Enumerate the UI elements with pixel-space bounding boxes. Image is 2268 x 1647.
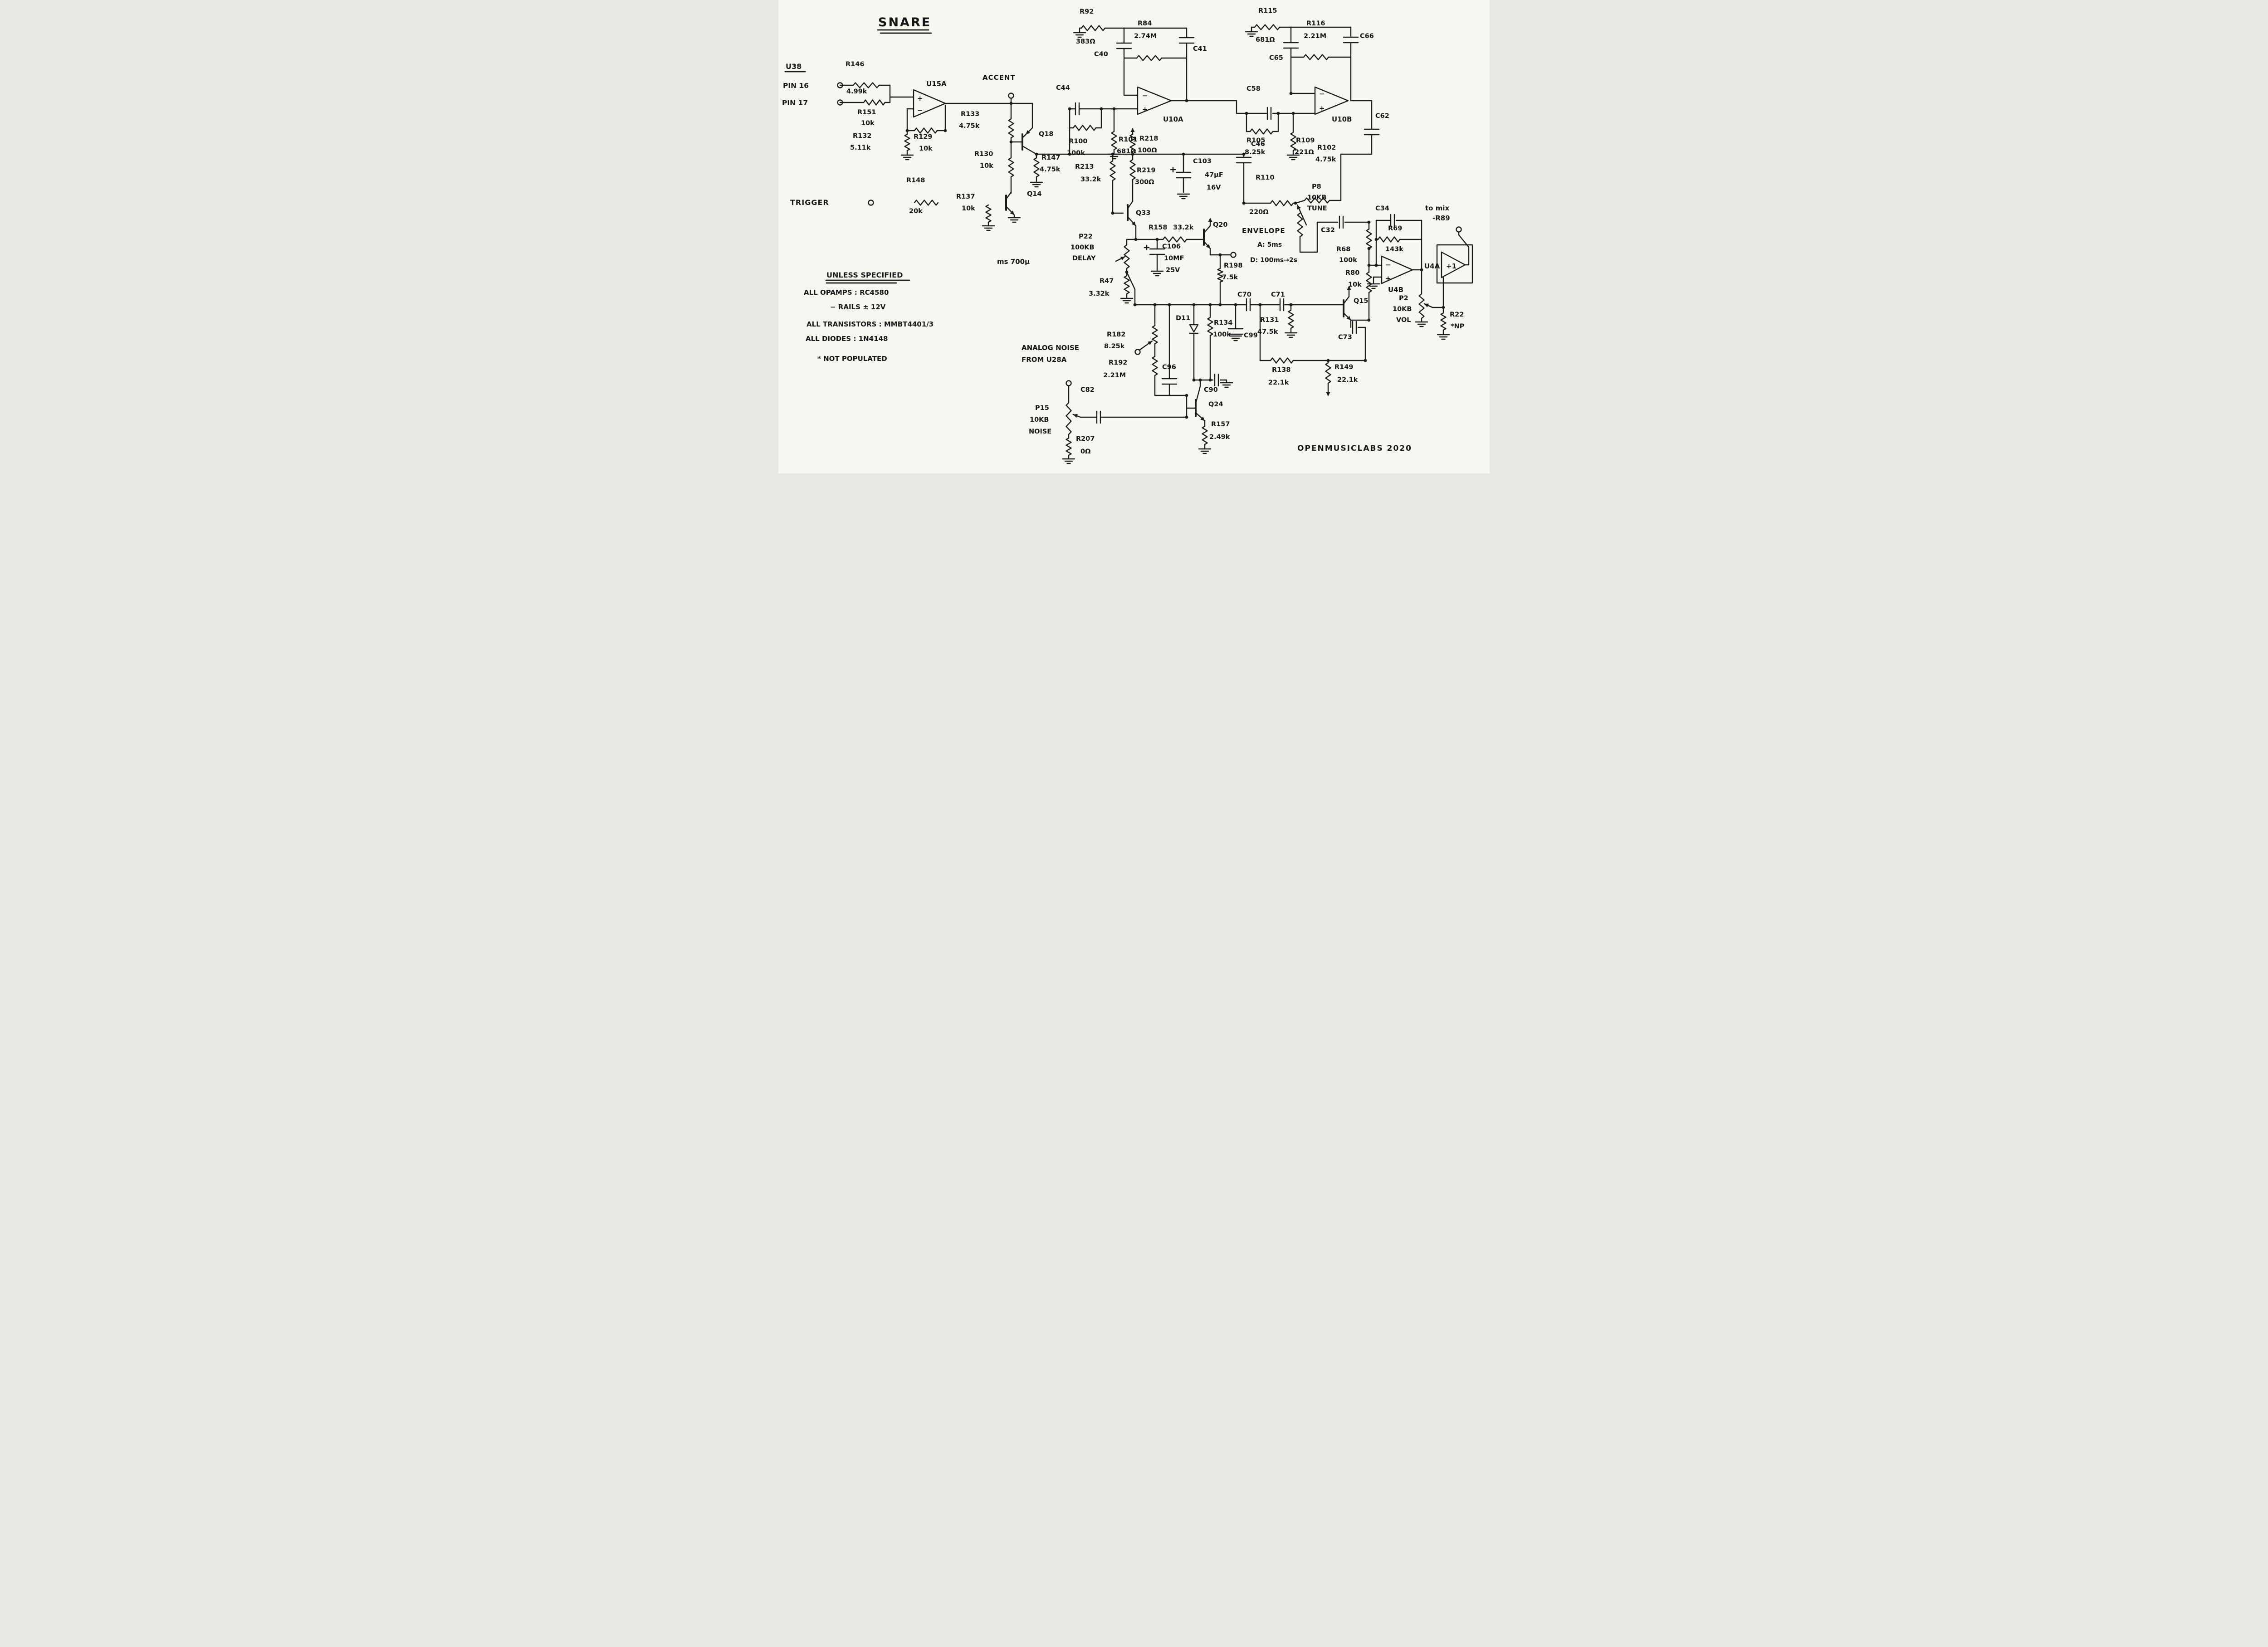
r110-value: 220Ω bbox=[1249, 209, 1269, 216]
component-C70 bbox=[1246, 299, 1250, 311]
c106-label: C106 bbox=[1162, 243, 1181, 250]
misc-label: ms 700µ bbox=[997, 258, 1030, 266]
r151-label: R151 bbox=[857, 109, 876, 116]
r22-label: R22 bbox=[1450, 311, 1464, 318]
resistor-symbol bbox=[1153, 326, 1158, 344]
c32-label: C32 bbox=[1321, 227, 1335, 234]
component-R129 bbox=[914, 128, 937, 133]
component-R115 bbox=[1255, 25, 1280, 30]
labels: R1464.99kR15110kR1325.11kR12910kR1334.75… bbox=[782, 7, 1465, 455]
tomix-line1: to mix bbox=[1425, 204, 1449, 212]
component-R147 bbox=[1034, 158, 1039, 177]
junction-dot bbox=[1134, 238, 1138, 241]
wiper-arrow-icon bbox=[1148, 341, 1152, 345]
opamp-sign-top: − bbox=[1385, 261, 1391, 269]
resistor-symbol bbox=[905, 134, 910, 151]
component-R68 bbox=[1367, 229, 1372, 249]
pin16-label: PIN 16 bbox=[783, 82, 809, 90]
component-Q18 bbox=[1022, 128, 1036, 154]
opamp-U4A-label: U4A bbox=[1424, 262, 1440, 270]
junction-dot bbox=[1154, 303, 1157, 307]
r192-label: R192 bbox=[1109, 359, 1127, 366]
component-C71 bbox=[1280, 299, 1284, 311]
r80-value: 10k bbox=[1348, 281, 1362, 288]
wires bbox=[785, 27, 1469, 458]
resistor-symbol bbox=[1124, 276, 1129, 294]
component-R146 bbox=[853, 83, 879, 88]
resistor-symbol bbox=[1112, 132, 1117, 150]
potentiometer-symbol bbox=[1419, 294, 1424, 318]
r148-value: 20k bbox=[909, 208, 923, 215]
q18-label: Q18 bbox=[1039, 131, 1054, 138]
component-R105 bbox=[1250, 129, 1273, 134]
p2-value: 10KB bbox=[1393, 306, 1412, 313]
opamp-U10B-label: U10B bbox=[1332, 115, 1352, 123]
buffer-gain: +1 bbox=[1446, 262, 1457, 270]
envelope-title: ENVELOPE bbox=[1242, 227, 1286, 235]
r192-value: 2.21M bbox=[1103, 372, 1126, 379]
opamp-U10A-symbol: −+ bbox=[1138, 87, 1171, 114]
transistor-symbol bbox=[1196, 386, 1205, 421]
capacitor-symbol bbox=[1267, 107, 1271, 119]
tomix-line2: -R89 bbox=[1432, 214, 1450, 222]
junction-dot bbox=[1156, 238, 1159, 241]
c106-value2: 25V bbox=[1166, 267, 1180, 274]
junction-dot bbox=[1242, 202, 1246, 205]
component-R192 bbox=[1153, 356, 1158, 375]
component-C32 bbox=[1339, 216, 1343, 228]
diode-symbol bbox=[1190, 325, 1198, 332]
power-arrow-icon bbox=[1326, 392, 1330, 396]
junction-dot bbox=[1185, 394, 1188, 397]
junction-dot bbox=[944, 129, 947, 132]
junction-dot bbox=[1234, 303, 1237, 307]
opamp-sign-top: − bbox=[1319, 90, 1325, 98]
r157-label: R157 bbox=[1211, 421, 1230, 428]
junction-dot bbox=[1113, 107, 1116, 111]
ground-icon bbox=[1221, 383, 1232, 387]
component-C73 bbox=[1353, 322, 1356, 333]
ground-icon bbox=[1416, 322, 1427, 326]
r147-value: 4.75k bbox=[1040, 166, 1061, 173]
q24-label: Q24 bbox=[1208, 401, 1223, 408]
r213-label: R213 bbox=[1075, 163, 1094, 171]
component-R84 bbox=[1137, 56, 1162, 61]
r47-label: R47 bbox=[1100, 278, 1114, 285]
c44-label: C44 bbox=[1056, 84, 1070, 92]
r207-value: 0Ω bbox=[1080, 448, 1090, 455]
c73-label: C73 bbox=[1338, 334, 1352, 341]
junction-dot bbox=[1219, 303, 1222, 307]
noise-line2: FROM U28A bbox=[1022, 356, 1067, 364]
p8-value: 10KB bbox=[1307, 194, 1326, 201]
r146-value: 4.99k bbox=[846, 88, 867, 95]
junction-dot bbox=[1193, 303, 1196, 307]
notes-line-4: ALL DIODES : 1N4148 bbox=[806, 335, 888, 343]
component-C40 bbox=[1117, 43, 1131, 49]
component-R100 bbox=[1073, 126, 1096, 131]
component-C62 bbox=[1364, 129, 1379, 135]
snare-schematic-canvas: +−−+−+−+R1464.99kR15110kR1325.11kR12910k… bbox=[778, 0, 1490, 473]
r133-value: 4.75k bbox=[959, 122, 980, 130]
component-R148 bbox=[914, 200, 938, 205]
resistor-symbol bbox=[864, 100, 885, 105]
accent-label: ACCENT bbox=[982, 73, 1016, 82]
junction-dot bbox=[1259, 303, 1262, 307]
capacitor-symbol bbox=[1215, 374, 1218, 386]
junction-dot bbox=[1185, 416, 1188, 419]
terminal-icon bbox=[1231, 253, 1236, 258]
resistor-symbol bbox=[1009, 158, 1014, 177]
r198-value: 7.5k bbox=[1222, 274, 1238, 281]
r109-label: R109 bbox=[1296, 137, 1315, 144]
component-R116 bbox=[1304, 55, 1329, 60]
r100-value: 100k bbox=[1067, 150, 1085, 157]
c66-label: C66 bbox=[1360, 33, 1374, 40]
r213-value: 33.2k bbox=[1080, 176, 1101, 183]
opamp-U15A-label: U15A bbox=[926, 80, 947, 88]
ground-icon bbox=[1121, 298, 1133, 303]
component-C96 bbox=[1162, 379, 1177, 384]
r100-label: R100 bbox=[1069, 138, 1087, 145]
component-R134 bbox=[1208, 317, 1213, 336]
notes-heading: UNLESS SPECIFIED bbox=[826, 271, 903, 279]
resistor-symbol bbox=[1441, 313, 1446, 330]
component-R213 bbox=[1110, 161, 1115, 180]
u38-label: U38 bbox=[786, 62, 802, 71]
component-D11 bbox=[1190, 325, 1198, 333]
resistor-symbol bbox=[1367, 272, 1372, 292]
transistor-symbol bbox=[1022, 128, 1036, 154]
opamp-U10A-label: U10A bbox=[1163, 115, 1183, 123]
ground-icon bbox=[1437, 335, 1449, 339]
junction-dot bbox=[1193, 379, 1196, 382]
r132-label: R132 bbox=[853, 132, 871, 140]
r158-value: 33.2k bbox=[1173, 224, 1194, 231]
component-C106 bbox=[1144, 245, 1164, 254]
ground-icon bbox=[1063, 459, 1075, 463]
component-R92 bbox=[1081, 26, 1105, 31]
r116-label: R116 bbox=[1306, 20, 1325, 27]
junction-dot bbox=[1327, 359, 1330, 362]
junction-dot bbox=[1209, 303, 1212, 307]
r69-value: 143k bbox=[1385, 246, 1403, 253]
ground-icon bbox=[1074, 33, 1085, 37]
component-C41 bbox=[1179, 38, 1194, 43]
junction-dot bbox=[1209, 379, 1212, 382]
junction-dot bbox=[1245, 112, 1248, 115]
r137-value: 10k bbox=[962, 205, 975, 212]
junction-dot bbox=[1368, 319, 1371, 322]
p2-value2: VOL bbox=[1396, 317, 1411, 324]
power-arrow-icon bbox=[1131, 128, 1135, 132]
resistor-symbol bbox=[1208, 317, 1213, 336]
r182-value: 8.25k bbox=[1104, 343, 1125, 350]
resistor-symbol bbox=[1009, 119, 1014, 138]
junction-dot bbox=[1290, 303, 1293, 307]
junction-dot bbox=[1294, 202, 1297, 205]
c70-label: C70 bbox=[1237, 291, 1251, 298]
r138-label: R138 bbox=[1272, 366, 1290, 374]
q15-label: Q15 bbox=[1354, 297, 1369, 305]
ground-icon bbox=[1151, 271, 1163, 276]
resistor-symbol bbox=[1326, 363, 1331, 383]
junction-dot bbox=[1219, 253, 1222, 257]
r109-value: 221Ω bbox=[1295, 149, 1314, 156]
terminal-icon bbox=[1066, 381, 1071, 386]
component-P15 bbox=[1066, 403, 1081, 434]
resistor-symbol bbox=[1110, 161, 1115, 180]
r149-value: 22.1k bbox=[1337, 376, 1358, 384]
resistor-symbol bbox=[1271, 201, 1293, 206]
component-R137 bbox=[986, 205, 991, 222]
c103-label: C103 bbox=[1193, 158, 1212, 165]
capacitor-symbol bbox=[1097, 411, 1100, 423]
envelope-decay: D: 100ms→2s bbox=[1250, 257, 1297, 264]
r92-label: R92 bbox=[1080, 8, 1094, 15]
junction-dot bbox=[1442, 306, 1445, 309]
component-R132 bbox=[905, 134, 910, 151]
ground-icon bbox=[1285, 333, 1297, 337]
junction-dot bbox=[1292, 112, 1295, 115]
resistor-symbol bbox=[1250, 129, 1273, 134]
opamp-sign-top: − bbox=[1142, 92, 1148, 100]
r101-label: R101 bbox=[1119, 136, 1137, 143]
component-Q24 bbox=[1196, 386, 1205, 421]
c96-label: C96 bbox=[1162, 364, 1176, 371]
title: SNARE bbox=[878, 15, 931, 29]
resistor-symbol bbox=[1291, 132, 1296, 151]
junction-dot bbox=[1199, 379, 1202, 382]
r158-label: R158 bbox=[1149, 224, 1167, 231]
resistor-symbol bbox=[1163, 237, 1187, 242]
junction-dot bbox=[1364, 359, 1367, 362]
component-R207 bbox=[1066, 438, 1071, 455]
resistor-symbol bbox=[1066, 438, 1071, 455]
p15-label: P15 bbox=[1035, 404, 1049, 412]
component-R130 bbox=[1009, 158, 1014, 177]
capacitor-symbol bbox=[1339, 216, 1343, 228]
q14-label: Q14 bbox=[1027, 190, 1042, 198]
r130-label: R130 bbox=[974, 151, 993, 158]
component-R69 bbox=[1378, 237, 1400, 242]
capacitor-symbol bbox=[1280, 299, 1284, 311]
r131-label: R131 bbox=[1260, 317, 1279, 324]
component-C66 bbox=[1344, 37, 1358, 43]
component-R131 bbox=[1289, 310, 1294, 328]
junction-dot bbox=[1068, 107, 1071, 111]
resistor-symbol bbox=[1304, 55, 1329, 60]
r218-value: 100Ω bbox=[1138, 147, 1157, 154]
noise-line1: ANALOG NOISE bbox=[1022, 344, 1079, 352]
r68-label: R68 bbox=[1336, 246, 1350, 253]
q33-label: Q33 bbox=[1136, 210, 1151, 217]
component-R158 bbox=[1163, 237, 1187, 242]
r110-label: R110 bbox=[1256, 174, 1274, 181]
notes-line-1: ALL OPAMPS : RC4580 bbox=[804, 288, 889, 297]
resistor-symbol bbox=[986, 205, 991, 222]
capacitor-symbol bbox=[1075, 103, 1079, 115]
r151-value: 10k bbox=[861, 120, 875, 127]
r133-label: R133 bbox=[961, 111, 979, 118]
resistor-symbol bbox=[1202, 426, 1207, 444]
resistor-symbol bbox=[1153, 356, 1158, 375]
r92-value: 383Ω bbox=[1076, 38, 1095, 45]
resistor-symbol bbox=[1271, 358, 1293, 363]
component-R151 bbox=[864, 100, 885, 105]
q20-label: Q20 bbox=[1213, 221, 1228, 229]
trigger-label: TRIGGER bbox=[790, 198, 829, 207]
component-P2 bbox=[1419, 294, 1433, 318]
notes-line-3: ALL TRANSISTORS : MMBT4401/3 bbox=[807, 320, 934, 328]
c34-label: C34 bbox=[1375, 205, 1389, 212]
component-Q14 bbox=[1006, 192, 1014, 215]
ground-icon bbox=[1008, 218, 1020, 222]
resistor-symbol bbox=[1130, 160, 1135, 180]
component-R133 bbox=[1009, 119, 1014, 138]
r218-label: R218 bbox=[1139, 135, 1158, 142]
opamp-sign-bottom: + bbox=[1142, 105, 1148, 113]
component-Q20 bbox=[1204, 218, 1212, 249]
r182-label: R182 bbox=[1107, 331, 1125, 338]
r138-value: 22.1k bbox=[1268, 379, 1289, 386]
symbols: +−−+−+−+ bbox=[838, 25, 1473, 464]
component-R157 bbox=[1202, 426, 1207, 444]
p8-value2: TUNE bbox=[1307, 205, 1327, 212]
component-C82 bbox=[1097, 411, 1100, 423]
r129-label: R129 bbox=[914, 133, 932, 141]
r207-label: R207 bbox=[1076, 435, 1095, 443]
capacitor-symbol bbox=[1284, 43, 1298, 48]
component-P22 bbox=[1116, 245, 1129, 268]
c103-value2: 16V bbox=[1207, 184, 1221, 191]
r198-label: R198 bbox=[1224, 262, 1242, 269]
capacitor-symbol bbox=[1162, 379, 1177, 384]
ground-icon bbox=[1246, 32, 1257, 36]
d11-label: D11 bbox=[1176, 315, 1190, 322]
capacitor-symbol bbox=[1344, 37, 1358, 43]
r132-value: 5.11k bbox=[850, 144, 871, 151]
ground-icon bbox=[1368, 284, 1379, 288]
ground-icon bbox=[1031, 182, 1042, 187]
c40-label: C40 bbox=[1094, 51, 1108, 58]
r101-value: 681Ω bbox=[1117, 148, 1136, 155]
junction-dot bbox=[1100, 107, 1103, 111]
ground-icon bbox=[982, 226, 994, 230]
r131-value: 47.5k bbox=[1257, 328, 1278, 336]
component-C46 bbox=[1237, 157, 1251, 163]
potentiometer-symbol bbox=[1298, 213, 1303, 237]
resistor-symbol bbox=[1289, 310, 1294, 328]
junction-dot bbox=[1010, 141, 1013, 144]
component-R22 bbox=[1441, 313, 1446, 330]
resistor-symbol bbox=[1034, 158, 1039, 177]
junction-dot bbox=[1185, 99, 1188, 102]
c62-label: C62 bbox=[1375, 112, 1389, 120]
terminal-icon bbox=[1457, 227, 1461, 232]
footer-credit: OPENMUSICLABS 2020 bbox=[1297, 444, 1412, 453]
component-Q33 bbox=[1128, 201, 1136, 226]
c65-label: C65 bbox=[1269, 54, 1283, 62]
capacitor-symbol bbox=[1179, 38, 1194, 43]
capacitor-symbol bbox=[1176, 172, 1191, 178]
envelope-attack: A: 5ms bbox=[1257, 241, 1282, 249]
opamp-U4B-symbol: −+ bbox=[1382, 256, 1413, 283]
component-C90 bbox=[1215, 374, 1218, 386]
opamp-sign-bottom: + bbox=[1385, 274, 1391, 283]
component-Q15 bbox=[1344, 286, 1351, 320]
component-R138 bbox=[1271, 358, 1293, 363]
resistor-symbol bbox=[1378, 237, 1400, 242]
r129-value: 10k bbox=[919, 145, 933, 152]
p22-label: P22 bbox=[1079, 233, 1093, 240]
ground-icon bbox=[1230, 336, 1242, 341]
r47-value: 3.32k bbox=[1089, 290, 1110, 297]
component-C103 bbox=[1171, 167, 1191, 178]
potentiometer-symbol bbox=[1066, 403, 1071, 434]
r116-value: 2.21M bbox=[1304, 33, 1326, 40]
junction-dot bbox=[1111, 212, 1114, 215]
component-R47 bbox=[1124, 276, 1129, 294]
component-P8 bbox=[1297, 205, 1306, 237]
junction-dot bbox=[1010, 102, 1013, 105]
ground-icon bbox=[901, 155, 913, 160]
resistor-symbol bbox=[1081, 26, 1105, 31]
r115-value: 681Ω bbox=[1256, 36, 1275, 44]
capacitor-symbol bbox=[1364, 129, 1379, 135]
junction-dot bbox=[1134, 303, 1137, 307]
pin17-label: PIN 17 bbox=[782, 99, 808, 107]
r115-label: R115 bbox=[1258, 7, 1277, 15]
opamp-sign-bottom: − bbox=[917, 106, 923, 114]
notes-line-2: − RAILS ± 12V bbox=[830, 303, 886, 311]
r130-value: 10k bbox=[980, 162, 993, 170]
r148-label: R148 bbox=[906, 177, 925, 184]
r147-label: R147 bbox=[1041, 154, 1060, 161]
r22-value: *NP bbox=[1451, 323, 1465, 330]
resistor-symbol bbox=[914, 128, 937, 133]
opamp-sign-top: + bbox=[917, 94, 923, 102]
resistor-symbol bbox=[914, 200, 938, 205]
plus-icon bbox=[1171, 167, 1175, 172]
r84-label: R84 bbox=[1138, 20, 1152, 27]
opamp-U15A-symbol: +− bbox=[914, 90, 945, 117]
resistor-symbol bbox=[1367, 229, 1372, 249]
resistor-symbol bbox=[1073, 126, 1096, 131]
c106-value: 10MF bbox=[1164, 255, 1184, 262]
c90-label: C90 bbox=[1204, 386, 1218, 394]
r105-value: 8.25k bbox=[1245, 149, 1266, 156]
junction-dot bbox=[1182, 153, 1185, 156]
resistor-symbol bbox=[1137, 56, 1162, 61]
junction-dot bbox=[1290, 92, 1293, 95]
schematic-page: +−−+−+−+R1464.99kR15110kR1325.11kR12910k… bbox=[778, 0, 1490, 473]
c99-label: C99 bbox=[1244, 332, 1258, 339]
component-R80 bbox=[1367, 272, 1372, 292]
r69-label: R69 bbox=[1388, 225, 1402, 232]
junction-dot bbox=[1125, 271, 1129, 274]
opamp-sign-bottom: + bbox=[1319, 104, 1325, 112]
r134-value: 100k bbox=[1213, 331, 1231, 338]
r146-label: R146 bbox=[846, 61, 864, 68]
r68-value: 100k bbox=[1339, 257, 1357, 264]
ground-icon bbox=[1199, 449, 1211, 453]
junction-dot bbox=[1375, 264, 1378, 267]
resistor-symbol bbox=[853, 83, 879, 88]
opamp-U4B-label: U4B bbox=[1388, 286, 1403, 294]
p2-label: P2 bbox=[1399, 295, 1408, 302]
component-R219 bbox=[1130, 160, 1135, 180]
